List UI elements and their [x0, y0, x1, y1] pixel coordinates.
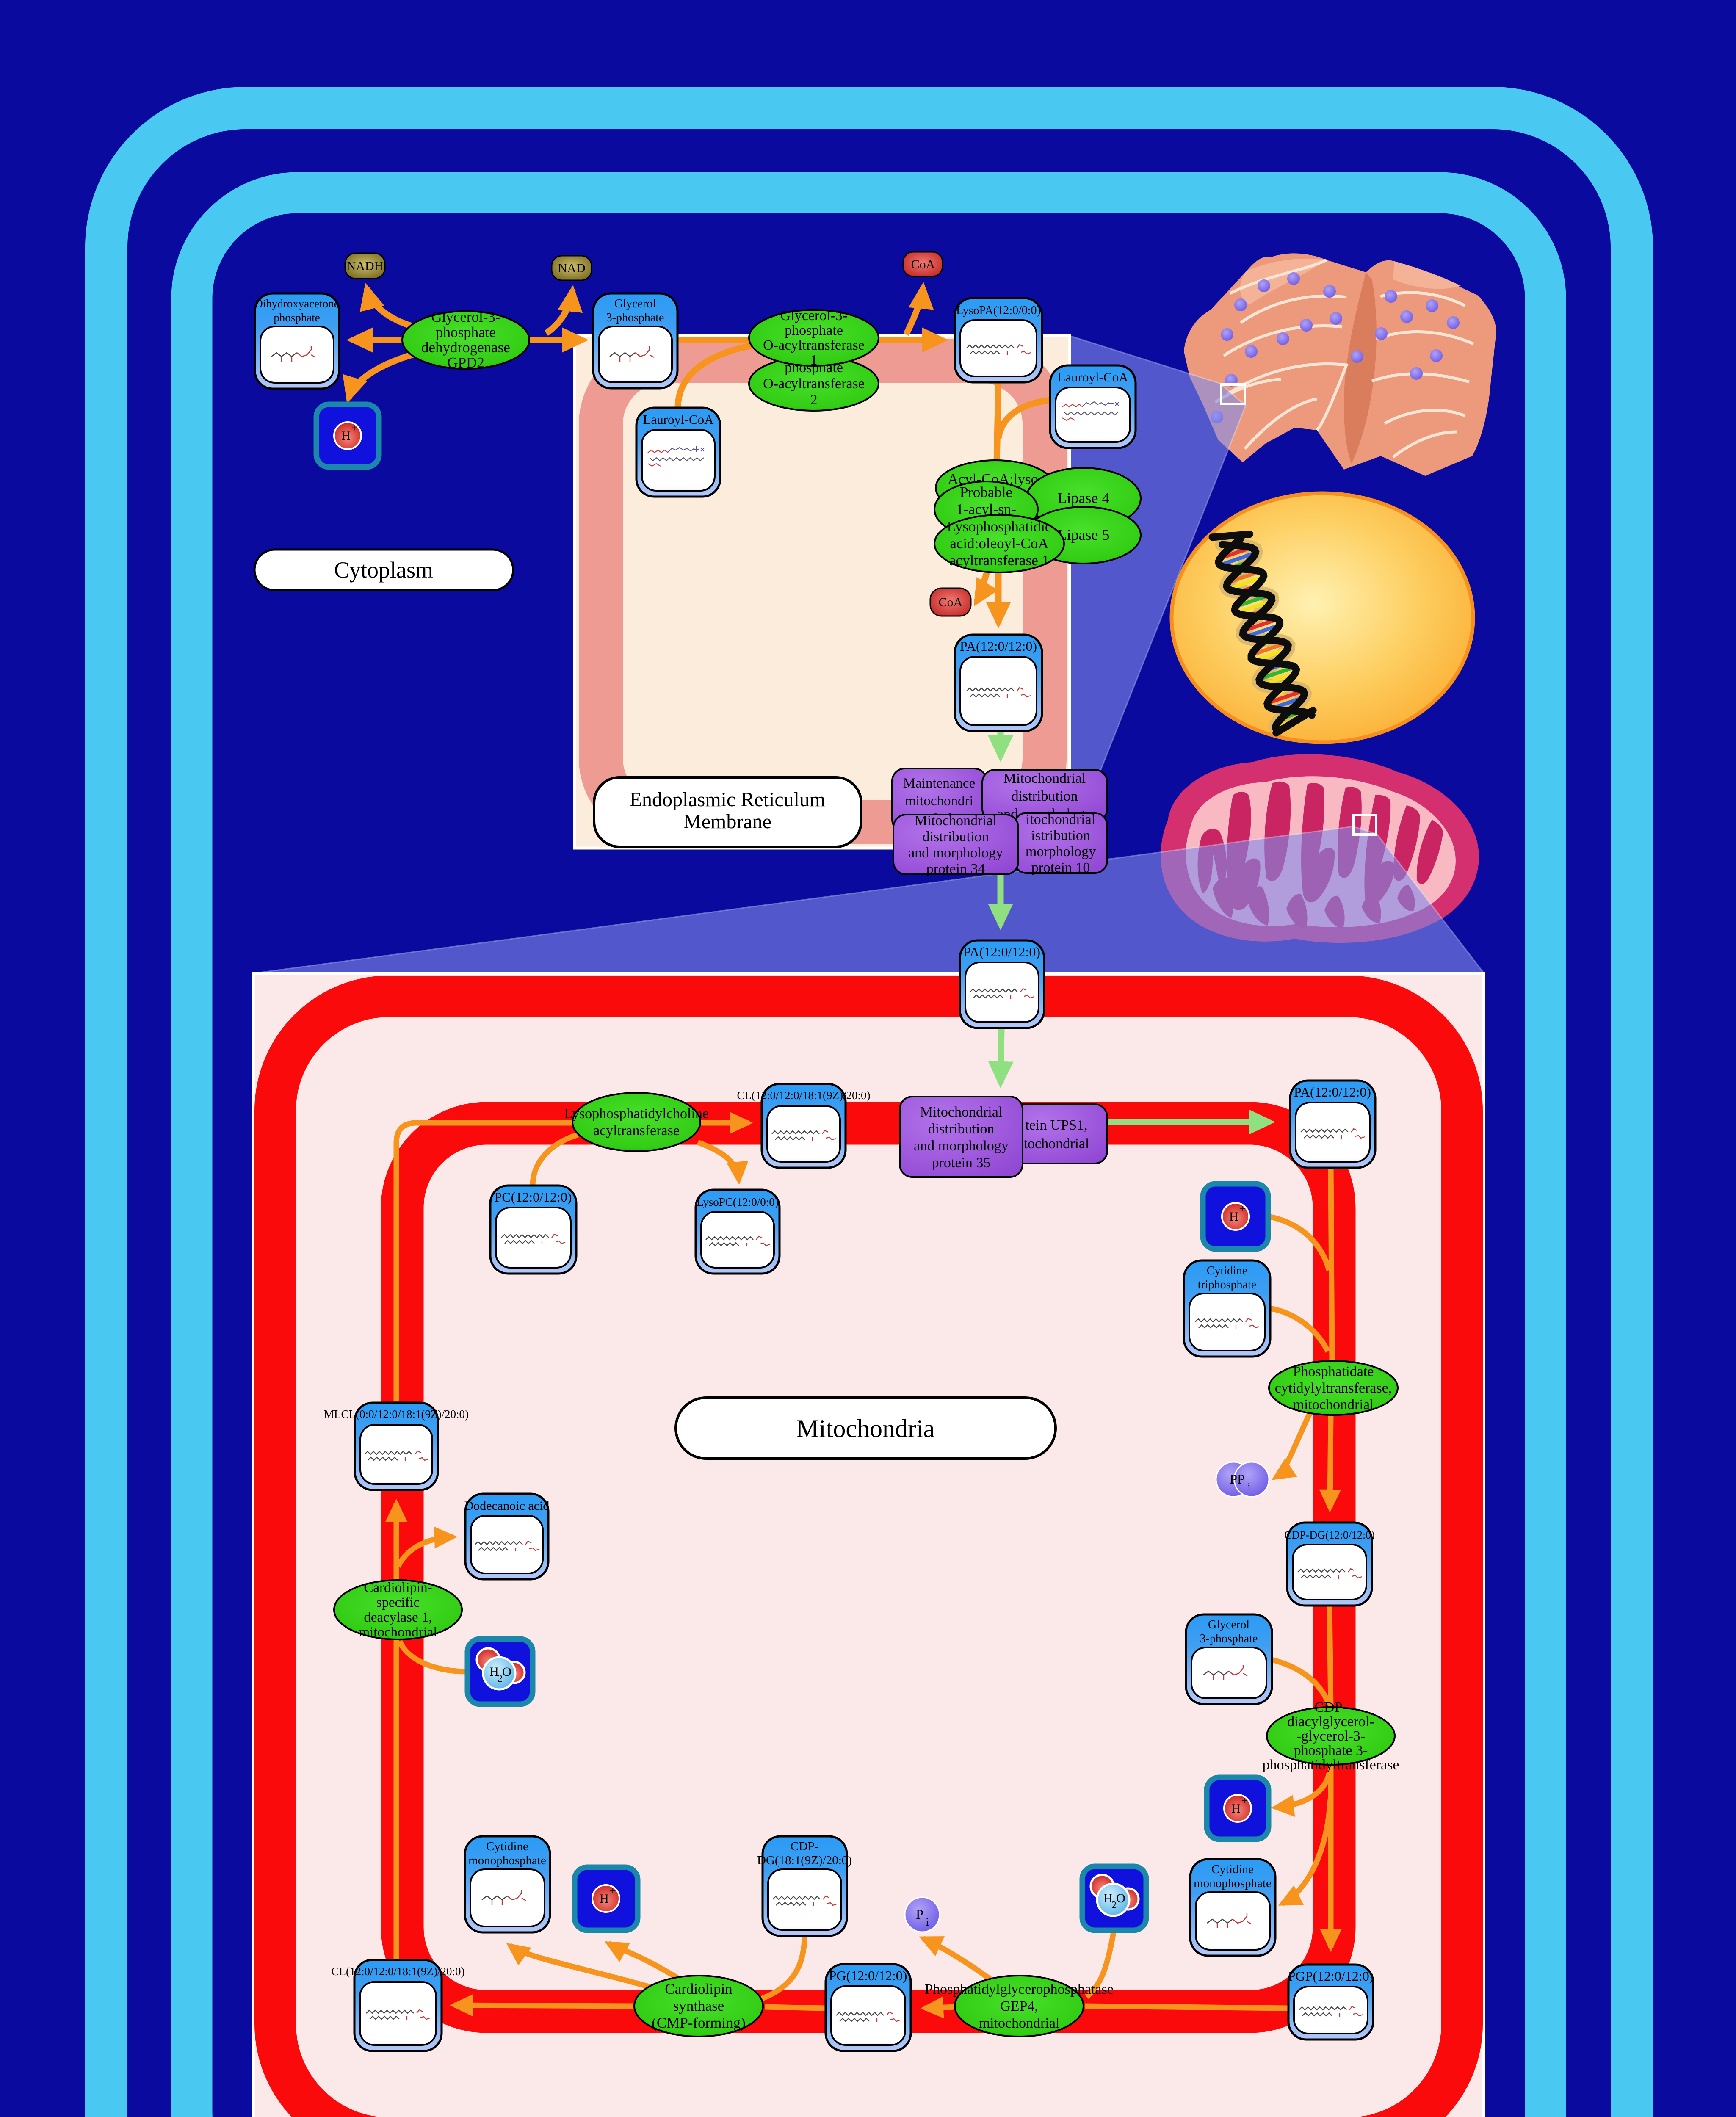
svg-text:itochondrial: itochondrial: [1026, 812, 1095, 827]
svg-text:distribution: distribution: [928, 1121, 995, 1137]
svg-text:phosphate: phosphate: [785, 323, 843, 338]
svg-text:Mitochondrial: Mitochondrial: [1003, 771, 1086, 786]
svg-text:mitochondri: mitochondri: [905, 793, 973, 809]
svg-text:H: H: [341, 429, 351, 443]
svg-text:O-acyltransferase: O-acyltransferase: [763, 376, 865, 392]
svg-text:CDP-DG(12:0/12:0): CDP-DG(12:0/12:0): [1284, 1529, 1375, 1541]
svg-text:Mitochondrial: Mitochondrial: [915, 813, 997, 829]
svg-text:Glycerol: Glycerol: [1208, 1618, 1249, 1631]
svg-text:diacylglycerol-: diacylglycerol-: [1287, 1714, 1374, 1730]
svg-text:Phosphatidate: Phosphatidate: [1293, 1364, 1374, 1379]
svg-text:O: O: [1116, 1891, 1125, 1905]
svg-text:H: H: [1231, 1802, 1241, 1816]
svg-text:cytidylyltransferase,: cytidylyltransferase,: [1275, 1380, 1392, 1396]
svg-text:acid:oleoyl-CoA: acid:oleoyl-CoA: [950, 535, 1049, 552]
svg-text:morphology: morphology: [1026, 844, 1096, 860]
svg-text:+: +: [1239, 1202, 1246, 1215]
svg-text:CoA: CoA: [939, 595, 963, 609]
svg-text:PGP(12:0/12:0): PGP(12:0/12:0): [1288, 1968, 1374, 1984]
svg-text:3-phosphate: 3-phosphate: [1200, 1632, 1258, 1645]
svg-text:Phosphatidylglycerophosphatase: Phosphatidylglycerophosphatase: [925, 1982, 1114, 1997]
svg-text:protein 10: protein 10: [1031, 860, 1090, 876]
svg-text:Cardiolipin-: Cardiolipin-: [364, 1580, 432, 1595]
svg-text:i: i: [926, 1916, 929, 1928]
svg-text:istribution: istribution: [1031, 828, 1090, 843]
svg-text:H: H: [600, 1892, 609, 1906]
svg-text:i: i: [1247, 1481, 1250, 1493]
svg-text:+: +: [610, 1885, 616, 1897]
svg-text:phosphate: phosphate: [436, 324, 496, 340]
svg-text:CL(12:0/12:0/18:1(9Z)/20:0): CL(12:0/12:0/18:1(9Z)/20:0): [737, 1089, 871, 1102]
svg-text:protein 35: protein 35: [932, 1155, 991, 1171]
svg-text:O-acyltransferase: O-acyltransferase: [763, 337, 865, 353]
svg-text:Cytidine: Cytidine: [1211, 1863, 1254, 1876]
svg-text:Cardiolipin: Cardiolipin: [665, 1981, 732, 1997]
svg-text:Mitochondrial: Mitochondrial: [920, 1104, 1003, 1120]
svg-text:-glycerol-3-: -glycerol-3-: [1296, 1728, 1365, 1744]
svg-text:Membrane: Membrane: [683, 810, 771, 833]
svg-text:PA(12:0/12:0): PA(12:0/12:0): [963, 944, 1040, 959]
svg-text:(CMP-forming): (CMP-forming): [652, 2015, 746, 2031]
svg-text:phosphate: phosphate: [274, 311, 320, 324]
svg-text:tein UPS1,: tein UPS1,: [1025, 1117, 1087, 1133]
svg-text:Glycerol: Glycerol: [614, 297, 656, 310]
svg-text:NADH: NADH: [347, 259, 384, 273]
svg-text:dehydrogenase: dehydrogenase: [421, 339, 510, 356]
svg-text:Lysophosphatidylcholine: Lysophosphatidylcholine: [564, 1106, 709, 1122]
svg-text:2: 2: [810, 392, 818, 408]
svg-text:Glycerol-3-: Glycerol-3-: [431, 309, 500, 325]
svg-text:mitochondrial: mitochondrial: [359, 1625, 437, 1640]
svg-text:Maintenance: Maintenance: [903, 776, 975, 791]
svg-text:monophosphate: monophosphate: [468, 1854, 546, 1867]
svg-text:specific: specific: [376, 1595, 420, 1610]
svg-text:Lysophosphatidic: Lysophosphatidic: [947, 518, 1052, 535]
svg-text:distribution: distribution: [1012, 788, 1078, 804]
svg-text:O: O: [502, 1665, 511, 1679]
svg-text:acyltransferase: acyltransferase: [593, 1123, 680, 1139]
svg-text:CDP-: CDP-: [791, 1840, 818, 1853]
svg-text:Lipase 5: Lipase 5: [1058, 526, 1110, 543]
svg-text:Mitochondria: Mitochondria: [796, 1415, 935, 1443]
svg-text:triphosphate: triphosphate: [1198, 1278, 1256, 1291]
svg-text:P: P: [916, 1907, 923, 1922]
svg-text:mitochondrial: mitochondrial: [979, 2015, 1060, 2031]
svg-text:PP: PP: [1230, 1471, 1245, 1487]
svg-text:synthase: synthase: [673, 1998, 724, 2014]
svg-text:CL(12:0/12:0/18:1(9Z)/20:0): CL(12:0/12:0/18:1(9Z)/20:0): [332, 1965, 465, 1978]
svg-text:Cytidine: Cytidine: [1207, 1264, 1247, 1277]
svg-text:LysoPC(12:0/0:0): LysoPC(12:0/0:0): [697, 1196, 779, 1208]
svg-text:CoA: CoA: [911, 257, 935, 271]
svg-text:NAD: NAD: [558, 261, 586, 275]
svg-text:MLCL(0:0/12:0/18:1(9Z)/20:0): MLCL(0:0/12:0/18:1(9Z)/20:0): [324, 1408, 469, 1421]
svg-text:Dihydroxyacetone: Dihydroxyacetone: [254, 297, 339, 310]
svg-text:Probable: Probable: [960, 484, 1012, 500]
svg-text:monophosphate: monophosphate: [1194, 1877, 1272, 1890]
svg-text:and morphology: and morphology: [908, 845, 1003, 861]
svg-text:and morphology: and morphology: [914, 1138, 1009, 1154]
svg-text:protein 34: protein 34: [926, 861, 985, 877]
svg-text:distribution: distribution: [923, 829, 989, 845]
svg-text:DG(18:1(9Z)/20:0): DG(18:1(9Z)/20:0): [757, 1854, 852, 1867]
svg-text:Cytidine: Cytidine: [486, 1840, 528, 1853]
svg-text:Lauroyl-CoA: Lauroyl-CoA: [1057, 370, 1128, 384]
svg-text:phosphatidyltransferase: phosphatidyltransferase: [1263, 1757, 1399, 1773]
svg-text:Cytoplasm: Cytoplasm: [334, 557, 433, 583]
svg-text:acyltransferase 1: acyltransferase 1: [949, 552, 1049, 569]
svg-text:Lipase 4: Lipase 4: [1058, 489, 1110, 506]
svg-text:deacylase 1,: deacylase 1,: [364, 1610, 432, 1625]
svg-text:Lauroyl-CoA: Lauroyl-CoA: [643, 412, 714, 427]
svg-text:GPD2: GPD2: [447, 354, 484, 371]
svg-text:1: 1: [810, 352, 818, 368]
svg-text:mitochondrial: mitochondrial: [1293, 1397, 1374, 1412]
svg-text:phosphate 3-: phosphate 3-: [1294, 1743, 1368, 1758]
svg-text:+: +: [351, 422, 358, 434]
svg-text:GEP4,: GEP4,: [1000, 1998, 1038, 2014]
svg-text:PG(12:0/12:0): PG(12:0/12:0): [829, 1968, 907, 1983]
svg-text:PA(12:0/12:0): PA(12:0/12:0): [1294, 1084, 1371, 1100]
svg-text:+: +: [1241, 1794, 1248, 1807]
svg-text:Dodecanoic acid: Dodecanoic acid: [464, 1499, 550, 1513]
svg-text:PA(12:0/12:0): PA(12:0/12:0): [960, 638, 1037, 654]
svg-text:PC(12:0/12:0): PC(12:0/12:0): [494, 1189, 572, 1205]
svg-text:Glycerol-3-: Glycerol-3-: [780, 308, 848, 323]
svg-text:CDP-: CDP-: [1314, 1700, 1347, 1715]
svg-text:3-phosphate: 3-phosphate: [606, 311, 664, 324]
svg-text:LysoPA(12:0/0:0): LysoPA(12:0/0:0): [956, 304, 1041, 317]
svg-text:tochondrial: tochondrial: [1024, 1136, 1089, 1152]
svg-text:Endoplasmic Reticulum: Endoplasmic Reticulum: [630, 788, 826, 811]
svg-text:H: H: [1229, 1210, 1238, 1224]
